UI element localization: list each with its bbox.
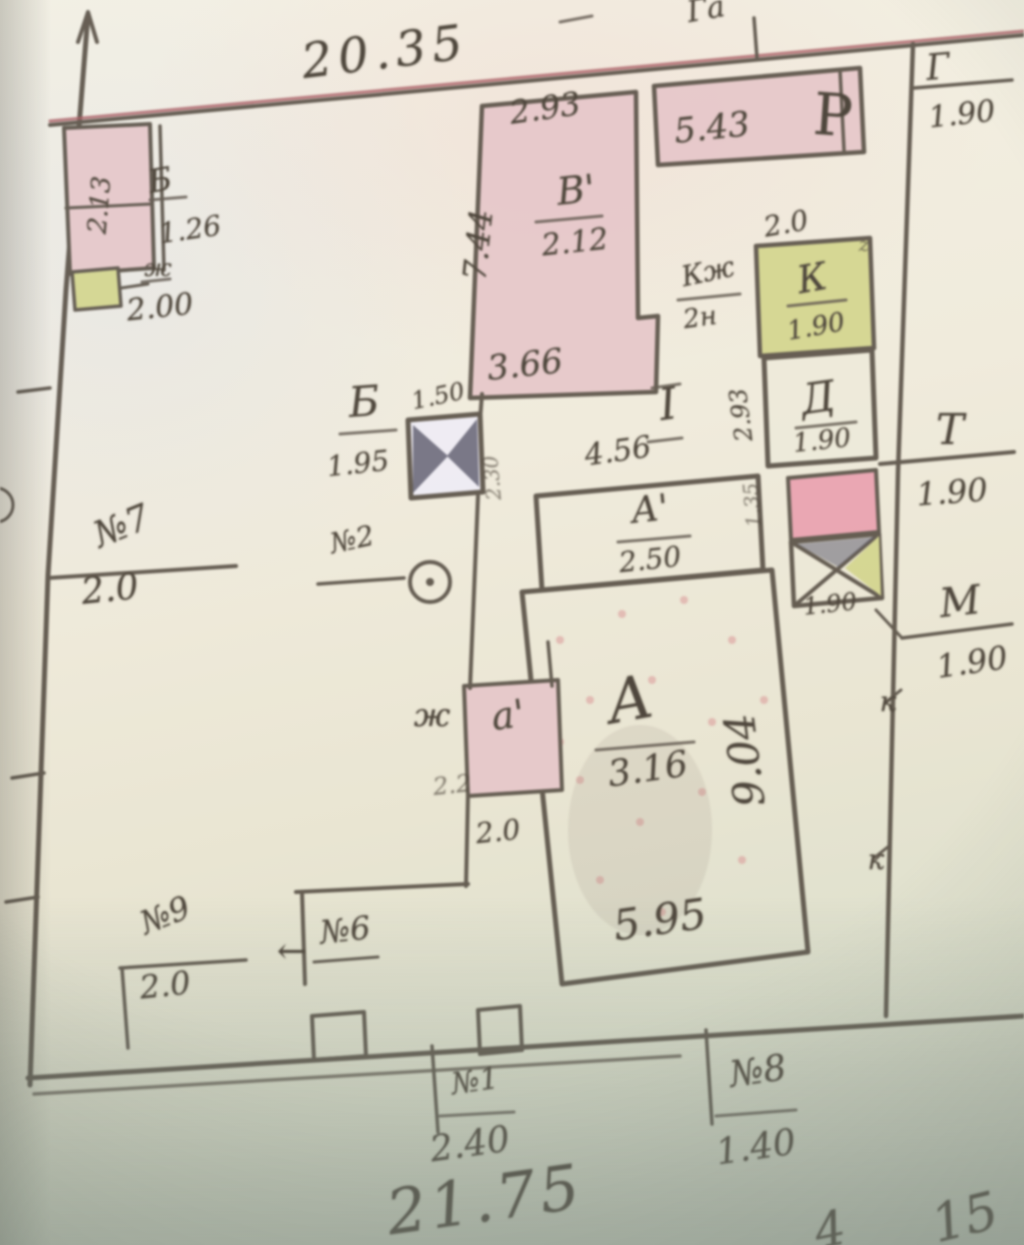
left-tick-3 <box>6 897 38 902</box>
dim-a2-mid: 2.2 <box>432 771 472 799</box>
yellow-shed-upper-left <box>72 268 121 310</box>
dim-a2-bottom: 2.0 <box>474 816 521 849</box>
marker-n1-label: №1 <box>449 1064 500 1100</box>
dim-parcel-front: 4.56 <box>583 432 653 471</box>
label-building-a2: а' <box>489 694 527 736</box>
marker-n6-label: №6 <box>318 911 372 948</box>
note-kzh-line2: 2н <box>682 303 719 333</box>
left-tick-1 <box>18 388 50 392</box>
m-leader-line <box>876 610 902 638</box>
dim-a-side: 9.04 <box>718 711 771 809</box>
center-path-upper <box>480 394 482 420</box>
label-ga: Га <box>685 0 727 28</box>
dim-a1-area: 2.50 <box>618 543 683 577</box>
zh-mark-ul: ж <box>144 256 171 280</box>
n2-leader-line <box>318 578 404 584</box>
label-g: Г <box>925 49 952 87</box>
dim-gate-b-side: 2.30 <box>480 455 504 501</box>
label-t: Т <box>936 409 964 451</box>
dim-d-side-bottom: 1.35 <box>740 482 764 528</box>
structure-t-pink <box>788 470 879 540</box>
dim-m: 1.90 <box>934 641 1009 683</box>
dim-t: 1.90 <box>915 474 988 511</box>
dim-zh-ul: 2.00 <box>125 290 195 327</box>
label-m: М <box>938 580 983 624</box>
n8-tick <box>706 1030 712 1124</box>
site-plan-drawing: 20.35 Га Г 1.90 5.43 Р 2.93 7.44 В' 2.12… <box>0 0 1024 1245</box>
z-tick: z <box>859 234 870 254</box>
label-building-d: Д <box>798 375 838 421</box>
k-tick-label-2: к <box>868 846 885 874</box>
label-building-a1: А' <box>630 490 671 530</box>
marker-n7-dim: 2.0 <box>80 569 141 611</box>
n9-bracket-v <box>122 968 128 1048</box>
marker-n8-label: №8 <box>727 1050 788 1094</box>
dim-k-top: 2.0 <box>762 206 811 241</box>
path-horizontal <box>296 884 468 892</box>
marker-n9-dim: 2.0 <box>138 966 192 1003</box>
dim-b-ul: 1.26 <box>157 212 223 248</box>
dim-v1-top: 2.93 <box>507 87 582 129</box>
k-tick-label-1: к <box>880 688 897 716</box>
n1-tick <box>432 1046 438 1132</box>
n6-underline <box>314 957 378 962</box>
n7-fence-line <box>48 566 236 578</box>
dim-gate-t: 1.90 <box>802 589 858 618</box>
right-boundary-line <box>886 44 913 1016</box>
top-tick <box>754 18 757 58</box>
dim-d-side-top: 2.93 <box>726 387 756 443</box>
center-path-mid <box>470 496 478 688</box>
left-edge-partial-circle <box>0 488 13 522</box>
label-building-k: К <box>794 257 830 300</box>
label-building-v1: В' <box>555 169 597 211</box>
dim-v1-left: 7.44 <box>458 208 497 282</box>
dim-building-d: 1.90 <box>792 425 852 457</box>
dim-corner-right-b: 15 <box>927 1185 1004 1245</box>
marker-n6-arrow-icon: ← <box>277 934 307 970</box>
dim-b-ul-inner: 2.13 <box>85 175 116 235</box>
dim-v1-area: 2.12 <box>540 225 610 262</box>
scanned-site-plan-photo: 20.35 Га Г 1.90 5.43 Р 2.93 7.44 В' 2.12… <box>0 0 1024 1245</box>
dim-v1-bottom: 3.66 <box>486 344 565 386</box>
dim-g: 1.90 <box>927 97 997 134</box>
label-building-r: Р <box>812 85 855 146</box>
bottom-boundary-inner-line <box>34 1056 680 1094</box>
m-divider-line <box>902 624 1012 638</box>
dim-gate-b: 1.95 <box>326 447 391 481</box>
zh-mark-a2: ж <box>414 699 450 731</box>
dim-a-bottom: 5.95 <box>611 893 709 948</box>
bottom-boundary-line <box>28 1016 1024 1078</box>
center-path-lower <box>466 794 468 886</box>
dim-building-r: 5.43 <box>673 107 752 149</box>
gate-post-1 <box>312 1012 366 1060</box>
label-building-b-ul: Б <box>146 162 175 198</box>
yellow-shed-connector <box>121 284 148 288</box>
label-gate-b: Б <box>347 380 381 424</box>
well-dot <box>426 578 434 586</box>
